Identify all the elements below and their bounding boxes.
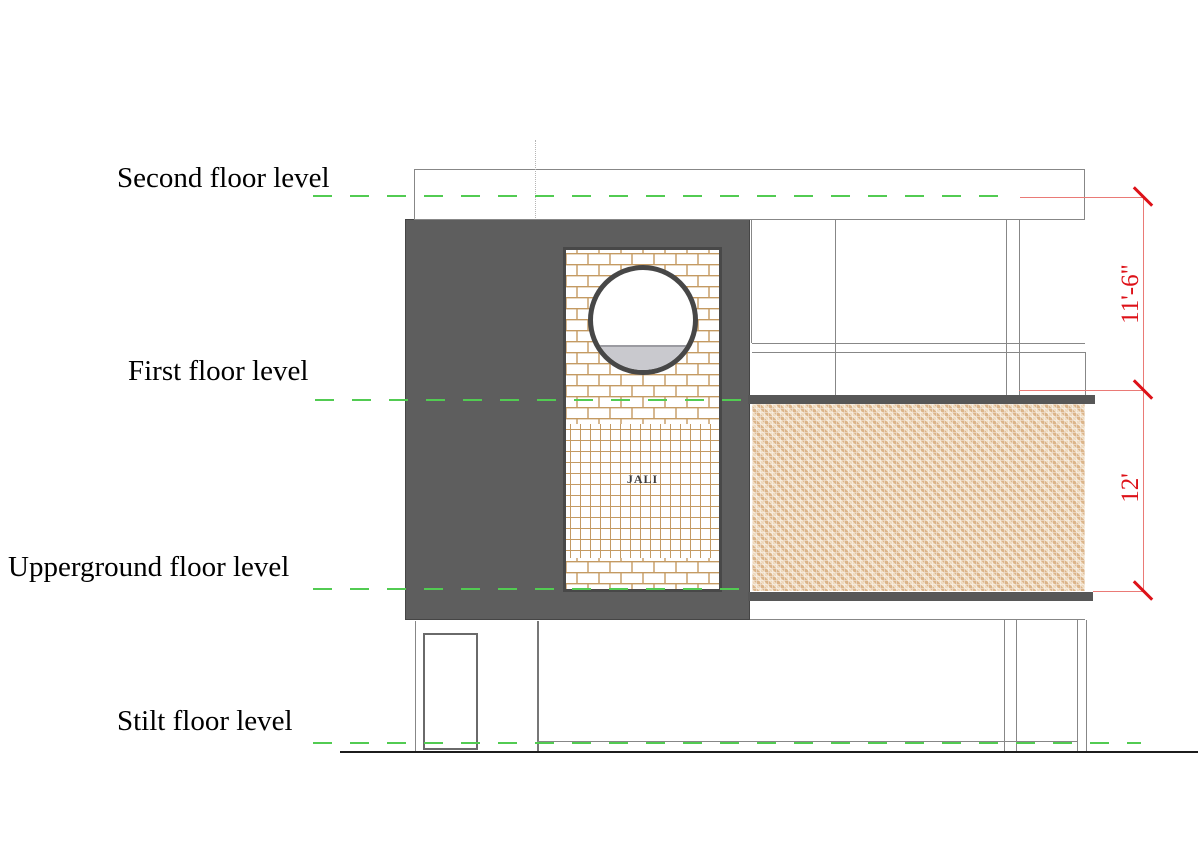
stilt-column-right2a: [1077, 620, 1078, 752]
balcony-side-edge: [1085, 352, 1086, 395]
dim-extension-first-floor: [1019, 390, 1143, 391]
balcony-screen-texture: [752, 404, 1085, 591]
ground-line: [340, 751, 1198, 753]
upperground-slab-band: [748, 592, 1093, 601]
railing-bottom-line: [752, 352, 1085, 353]
column-line-2a: [1006, 219, 1007, 395]
jali-label: JALI: [563, 472, 722, 487]
dimension-label-12: 12': [1118, 428, 1144, 548]
stilt-column-right1b: [1016, 620, 1017, 752]
circular-window-gray-fill: [593, 345, 693, 370]
dim-extension-second-floor: [1020, 197, 1143, 198]
level-line-upperground-floor: [313, 588, 750, 590]
stilt-column-left-line: [415, 621, 416, 752]
centerline: [535, 140, 536, 218]
dimension-label-11-6: 11'-6": [1118, 234, 1144, 354]
level-label-stilt-floor: Stilt floor level: [117, 707, 293, 736]
stilt-column-right1a: [1004, 620, 1005, 752]
dim-extension-upperground: [1093, 591, 1143, 592]
stilt-pier: [423, 633, 478, 750]
first-floor-slab-band: [748, 395, 1095, 404]
level-line-first-floor: [315, 399, 752, 401]
level-label-second-floor: Second floor level: [117, 164, 330, 193]
level-label-upperground-floor: Upperground floor level: [8, 553, 289, 582]
stilt-column-mid: [537, 621, 539, 752]
stilt-column-right2b: [1086, 620, 1087, 752]
level-line-stilt-floor: [313, 742, 1141, 744]
column-line-2b: [1019, 219, 1020, 395]
column-line-1: [835, 219, 836, 395]
balcony-woven-screen: [752, 404, 1085, 591]
level-line-second-floor: [313, 195, 1013, 197]
circular-window: [588, 265, 698, 375]
railing-top-line: [752, 343, 1085, 344]
wall-edge-line: [751, 219, 752, 343]
slab-soffit-line: [750, 619, 1085, 620]
level-label-first-floor: First floor level: [128, 357, 308, 386]
building-elevation-drawing: JALI Second floor level First floor leve…: [0, 0, 1200, 849]
